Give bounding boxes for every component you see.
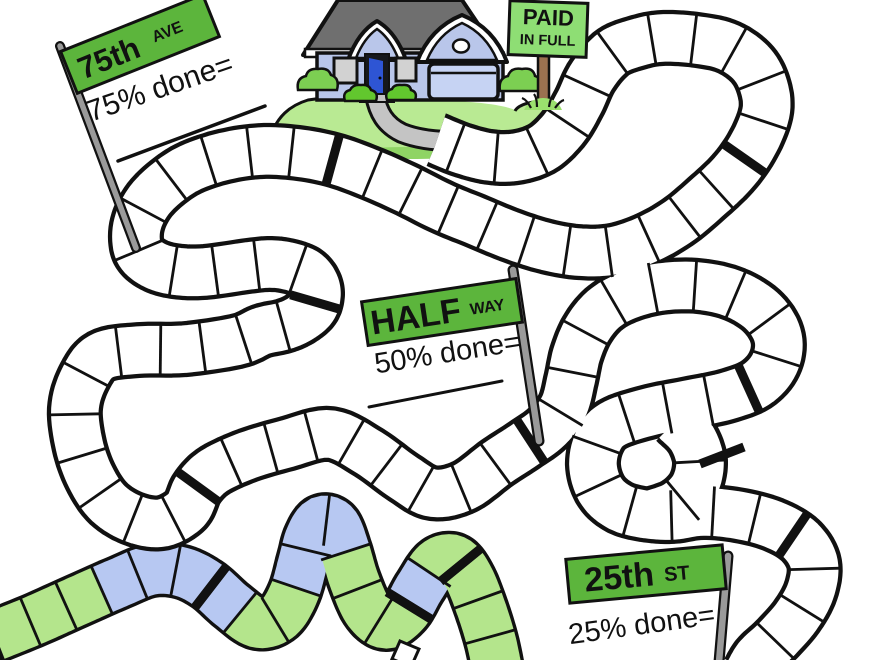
svg-text:IN FULL: IN FULL <box>520 32 576 50</box>
svg-text:PAID: PAID <box>523 4 575 31</box>
svg-text:ST: ST <box>663 562 690 586</box>
svg-text:25th: 25th <box>583 555 656 599</box>
